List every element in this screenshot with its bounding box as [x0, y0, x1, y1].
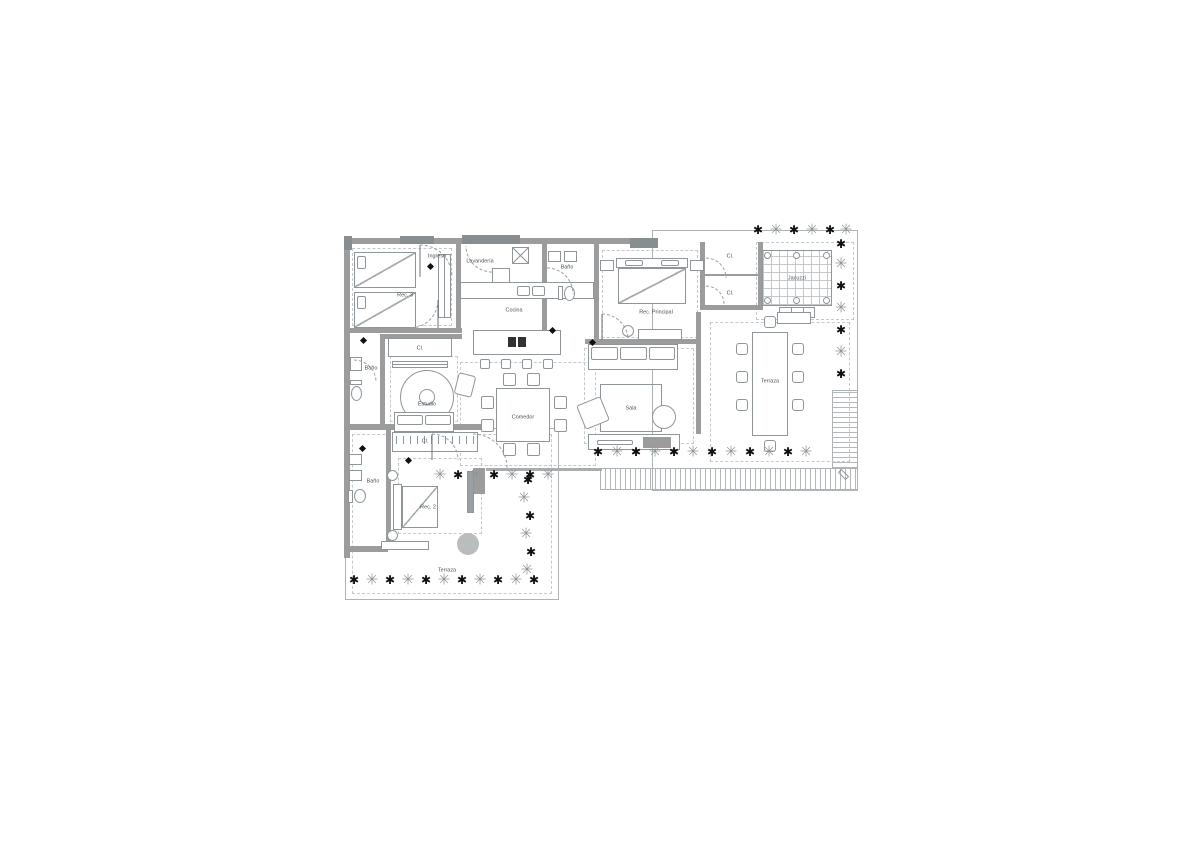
- plant-icon: ✳: [763, 445, 776, 460]
- plant-icon: ✱: [453, 469, 463, 481]
- room-label-rec-principal: Rec. Principal: [639, 309, 673, 314]
- room-label-cl-estudio: Cl.: [417, 345, 424, 350]
- sink-icon: [349, 470, 362, 481]
- nightstand-rec2: [387, 530, 398, 541]
- plant-icon: ✱: [669, 446, 679, 458]
- bench-recppal: [638, 329, 682, 340]
- wall-corner-topleft: [344, 236, 352, 250]
- wall-closet-bottom: [705, 305, 763, 310]
- sink-icon: [564, 251, 577, 262]
- jacuzzi-jet: [823, 252, 830, 259]
- bar-stool: [543, 359, 553, 369]
- dining-chair: [481, 396, 494, 409]
- plant-icon: ✳: [835, 257, 848, 272]
- pillow-icon: [625, 260, 643, 266]
- plant-icon: ✱: [836, 280, 846, 292]
- room-label-ingreso: Ingreso: [428, 253, 446, 258]
- cooktop-icon: [508, 337, 516, 347]
- room-label-rec3: Rec. 3: [397, 292, 413, 297]
- door-mark: [360, 337, 367, 344]
- room-label-cl-rec2: Cl.: [422, 438, 429, 443]
- plant-icon: ✱: [836, 238, 846, 250]
- plant-icon: ✳: [402, 573, 415, 588]
- plant-icon: ✳: [611, 445, 624, 460]
- plant-icon: ✳: [366, 573, 379, 588]
- room-label-bano-top: Baño: [561, 264, 574, 269]
- sofa-cushion: [425, 415, 451, 425]
- sofa-cushion: [591, 347, 618, 360]
- plant-icon: ✱: [593, 446, 603, 458]
- pillow-icon: [661, 260, 679, 266]
- window-recppal: [630, 238, 658, 248]
- room-label-rec2: Rec. 2: [420, 504, 436, 509]
- wall-estudio-left: [380, 334, 385, 430]
- room-label-cl-master-2: Cl.: [727, 290, 734, 295]
- plant-icon: ✱: [489, 469, 499, 481]
- plant-icon: ✱: [349, 574, 359, 586]
- sofa-cushion: [649, 347, 675, 360]
- terrace-chair: [792, 371, 804, 383]
- plant-icon: ✳: [434, 468, 447, 483]
- bench-terrace: [381, 541, 429, 550]
- plant-icon: ✳: [470, 468, 483, 483]
- sofa-cushion: [620, 347, 647, 360]
- room-label-lavanderia: Lavandería: [466, 258, 493, 263]
- shelf-estudio: [392, 361, 448, 368]
- sink-icon: [532, 286, 545, 296]
- sink-icon: [548, 251, 561, 262]
- plant-icon: ✳: [835, 345, 848, 360]
- plant-icon: ✱: [707, 446, 717, 458]
- planter-pot: [457, 533, 479, 555]
- jacuzzi-jet: [823, 297, 830, 304]
- terrace-chair: [736, 399, 748, 411]
- window-entry: [400, 236, 434, 244]
- plant-icon: ✱: [493, 574, 503, 586]
- wall-bath-right: [594, 244, 599, 345]
- wall-sala-terrace: [696, 312, 701, 434]
- plant-icon: ✳: [542, 468, 555, 483]
- jacuzzi-jet: [793, 297, 800, 304]
- plant-icon: ✱: [783, 446, 793, 458]
- floor-plan: ✱✳✱✳✱✳✱✳✱✳✱✳✱✱✳✱✳✱✳✱✳✱✳✱✳✳✱✳✱✳✱✳✱✳✱✳✱✳✱✳…: [340, 228, 864, 604]
- dining-chair: [481, 419, 494, 432]
- plant-icon: ✱: [385, 574, 395, 586]
- pillow-icon: [357, 296, 366, 309]
- sofa-estudio: [394, 412, 454, 432]
- bar-stool: [480, 359, 490, 369]
- page-canvas: ✱✳✱✳✱✳✱✳✱✳✱✳✱✱✳✱✳✱✳✱✳✱✳✱✳✳✱✳✱✳✱✳✱✳✱✳✱✳✱✳…: [0, 0, 1200, 842]
- plant-icon: ✱: [836, 324, 846, 336]
- plant-icon: ✱: [745, 446, 755, 458]
- plant-icon: ✱: [526, 546, 536, 558]
- plant-icon: ✳: [520, 527, 533, 542]
- sink-icon: [349, 454, 362, 465]
- plant-icon: ✳: [518, 491, 531, 506]
- bar-stool: [522, 359, 532, 369]
- sink-icon: [517, 286, 530, 296]
- nightstand: [600, 260, 614, 271]
- toilet-tank: [558, 286, 563, 300]
- jacuzzi-jet: [764, 252, 771, 259]
- plant-icon: ✱: [631, 446, 641, 458]
- pouf-sala: [652, 405, 676, 429]
- washer-icon: [512, 247, 529, 264]
- dining-chair: [554, 396, 567, 409]
- room-label-cocina: Cocina: [506, 307, 523, 312]
- sofa-sala: [588, 344, 678, 370]
- room-label-terraza-bottom: Terraza: [438, 567, 456, 572]
- jacuzzi-jet: [793, 252, 800, 259]
- hanger-rail-icon: [396, 436, 474, 444]
- toilet-tank: [348, 490, 353, 503]
- wardrobe-rec3: [438, 254, 451, 318]
- terrace-chair: [792, 399, 804, 411]
- plant-icon: ✱: [825, 224, 835, 236]
- nightstand-rec2: [387, 470, 398, 481]
- terrace-chair: [736, 343, 748, 355]
- wall-rec3-bottom: [344, 328, 462, 333]
- plant-icon: ✱: [523, 474, 533, 486]
- plant-icon: ✱: [789, 224, 799, 236]
- room-label-bano-low: Baño: [367, 478, 380, 483]
- dining-chair: [527, 373, 540, 386]
- terrace-chair: [736, 371, 748, 383]
- headboard-rec2: [393, 484, 402, 530]
- dining-chair: [503, 443, 516, 456]
- wall-closet-mid: [705, 274, 758, 276]
- plant-icon: ✳: [438, 573, 451, 588]
- wall-left: [344, 238, 350, 558]
- room-label-bano-mid: Baño: [365, 365, 378, 370]
- room-label-cl-master-1: Cl.: [727, 253, 734, 258]
- pillow-icon: [357, 256, 366, 269]
- cooktop-icon: [518, 337, 526, 347]
- room-label-estudio: Estudio: [418, 401, 436, 406]
- sink-icon: [350, 357, 362, 371]
- plant-icon: ✳: [687, 445, 700, 460]
- bed-recppal: [618, 268, 686, 304]
- plant-icon: ✳: [770, 223, 783, 238]
- plant-icon: ✱: [529, 574, 539, 586]
- plant-icon: ✳: [800, 445, 813, 460]
- plant-icon: ✳: [840, 223, 853, 238]
- plant-icon: ✳: [510, 573, 523, 588]
- room-label-terraza-right: Terraza: [761, 378, 779, 383]
- plant-icon: ✱: [457, 574, 467, 586]
- toilet-tank: [350, 380, 362, 385]
- toilet-icon: [564, 286, 575, 301]
- wall-recppal-right: [700, 242, 705, 310]
- toilet-icon: [354, 489, 366, 503]
- closet-rec2: [392, 432, 478, 452]
- room-label-comedor: Comedor: [512, 414, 534, 419]
- plant-icon: ✱: [753, 224, 763, 236]
- headboard-recppal: [616, 258, 688, 268]
- room-label-sala: Sala: [626, 405, 637, 410]
- dining-chair: [503, 373, 516, 386]
- side-table-recppal: [622, 325, 634, 337]
- bed-rec3-1: [354, 252, 416, 288]
- plant-icon: ✳: [506, 468, 519, 483]
- jacuzzi-jet: [764, 297, 771, 304]
- bar-stool: [501, 359, 511, 369]
- window-laundry: [462, 235, 520, 244]
- console-terrace: [777, 312, 811, 324]
- room-label-jacuzzi: Jacuzzi: [788, 275, 806, 280]
- plant-icon: ✳: [474, 573, 487, 588]
- toilet-icon: [351, 386, 362, 401]
- plant-icon: ✳: [725, 445, 738, 460]
- dining-chair: [527, 443, 540, 456]
- plant-icon: ✱: [421, 574, 431, 586]
- terrace-chair: [764, 316, 776, 328]
- terrace-table: [752, 332, 788, 436]
- terrace-chair: [792, 343, 804, 355]
- plant-icon: ✱: [836, 368, 846, 380]
- plant-icon: ✱: [525, 510, 535, 522]
- nightstand: [690, 260, 704, 271]
- sofa-cushion: [397, 415, 423, 425]
- deck-bottom: [600, 468, 858, 490]
- plant-icon: ✳: [649, 445, 662, 460]
- plant-icon: ✳: [835, 301, 848, 316]
- dining-chair: [554, 419, 567, 432]
- kitchen-island: [473, 330, 561, 355]
- plant-icon: ✳: [806, 223, 819, 238]
